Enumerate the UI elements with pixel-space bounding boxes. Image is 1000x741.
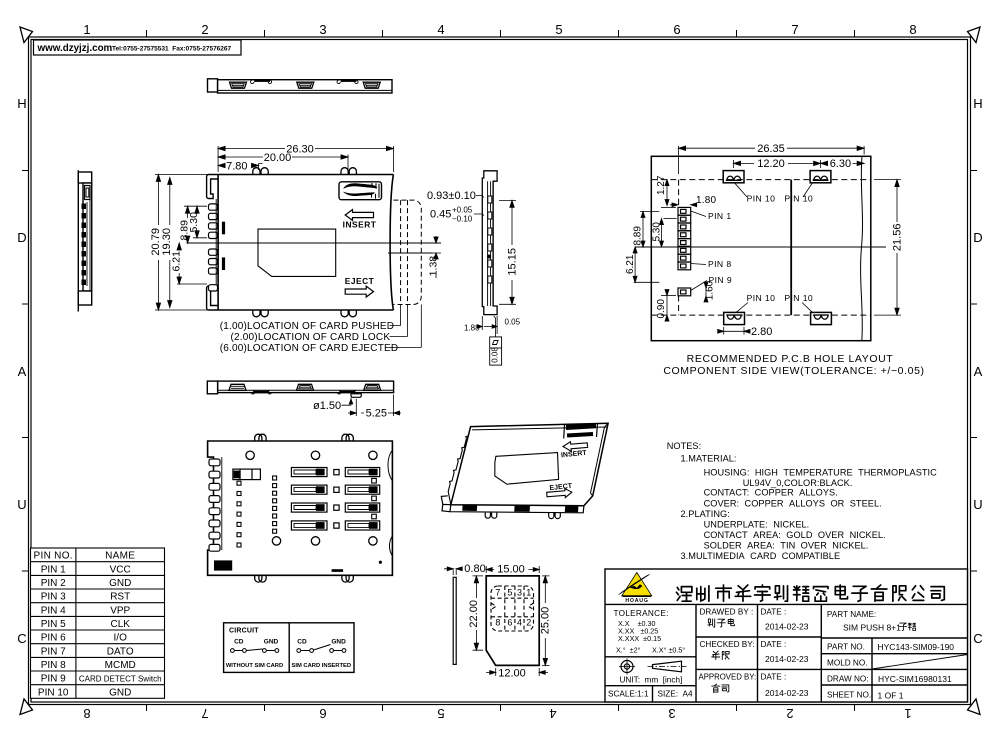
svg-text:RECOMMENDED P.C.B HOLE LAYOUT: RECOMMENDED P.C.B HOLE LAYOUT xyxy=(687,353,894,365)
svg-text:0.45: 0.45 xyxy=(430,209,451,221)
svg-text:A: A xyxy=(18,364,27,379)
svg-text:PIN 5: PIN 5 xyxy=(41,619,66,630)
svg-text:0.90: 0.90 xyxy=(656,299,667,319)
svg-text:PIN 3: PIN 3 xyxy=(41,592,66,603)
svg-text:I/O: I/O xyxy=(114,633,128,644)
svg-text:GND: GND xyxy=(109,687,131,698)
svg-text:8.89: 8.89 xyxy=(633,226,644,246)
svg-text:HOUSING: HIGH TEMPERATURE THER: HOUSING: HIGH TEMPERATURE THERMOPLASTIC xyxy=(704,468,938,478)
svg-text:DRAW NO:: DRAW NO: xyxy=(827,675,869,684)
svg-text:PIN 9: PIN 9 xyxy=(41,674,66,685)
svg-text:8: 8 xyxy=(83,706,90,721)
svg-text:4: 4 xyxy=(437,22,444,37)
svg-text:12.00: 12.00 xyxy=(498,667,526,679)
svg-text:www.dzyjzj.com: www.dzyjzj.com xyxy=(37,43,113,54)
svg-text:15.15: 15.15 xyxy=(506,248,518,276)
svg-text:PIN NO.: PIN NO. xyxy=(34,551,73,562)
svg-text:NAME: NAME xyxy=(105,551,135,562)
svg-text:ø1.50: ø1.50 xyxy=(313,400,341,412)
svg-text:6: 6 xyxy=(673,22,680,37)
svg-text:1.27: 1.27 xyxy=(656,175,667,195)
svg-text:0.08: 0.08 xyxy=(491,347,500,363)
svg-text:CONTACT AREA: GOLD OVER NICKEL: CONTACT AREA: GOLD OVER NICKEL. xyxy=(704,530,886,540)
svg-text:U: U xyxy=(973,497,982,512)
svg-text:+0.05: +0.05 xyxy=(452,206,473,215)
svg-text:5: 5 xyxy=(507,588,512,598)
svg-text:Tel:0755-27575531 Fax:0755-27: Tel:0755-27575531 Fax:0755-27576267 xyxy=(112,45,232,52)
svg-text:6.21: 6.21 xyxy=(170,251,182,272)
svg-text:CHECKED BY:: CHECKED BY: xyxy=(700,640,755,649)
svg-text:UL94V_0,COLOR:BLACK.: UL94V_0,COLOR:BLACK. xyxy=(743,478,853,488)
svg-text:HYC-SIM16980131: HYC-SIM16980131 xyxy=(878,674,952,684)
svg-text:CD: CD xyxy=(234,639,244,646)
svg-text:DATO: DATO xyxy=(107,646,134,657)
svg-text:25.00: 25.00 xyxy=(540,607,552,635)
svg-text:APPROVED BY:: APPROVED BY: xyxy=(699,673,757,682)
svg-text:2.80: 2.80 xyxy=(751,326,772,338)
svg-text:2.PLATING:: 2.PLATING: xyxy=(681,509,730,519)
svg-text:PIN 7: PIN 7 xyxy=(41,646,66,657)
svg-text:PIN 10: PIN 10 xyxy=(747,194,776,204)
svg-text:MCMD: MCMD xyxy=(105,660,136,671)
svg-text:PART NAME:: PART NAME: xyxy=(827,610,876,619)
svg-text:GND: GND xyxy=(331,639,346,646)
svg-text:−0.10: −0.10 xyxy=(452,215,473,224)
svg-text:CIRCUIT: CIRCUIT xyxy=(229,628,259,635)
svg-text:UNIT: mm [inch]: UNIT: mm [inch] xyxy=(620,676,683,685)
svg-text:5: 5 xyxy=(437,706,444,721)
svg-text:DATE :: DATE : xyxy=(761,673,787,682)
svg-text:PIN 10: PIN 10 xyxy=(38,687,69,698)
svg-text:CONTACT: COPPER ALLOYS.: CONTACT: COPPER ALLOYS. xyxy=(704,488,838,498)
svg-text:26.35: 26.35 xyxy=(757,143,785,155)
svg-text:X.° ±2°: X.° ±2° xyxy=(616,646,641,655)
svg-text:PART NO.: PART NO. xyxy=(827,643,865,652)
svg-text:5: 5 xyxy=(555,22,562,37)
svg-text:DATE :: DATE : xyxy=(761,640,787,649)
svg-text:GND: GND xyxy=(109,578,131,589)
svg-text:1.MATERIAL:: 1.MATERIAL: xyxy=(681,454,737,464)
svg-text:RST: RST xyxy=(110,592,130,603)
svg-text:12.20: 12.20 xyxy=(757,158,785,170)
svg-text:SCALE:1:1: SCALE:1:1 xyxy=(608,690,649,699)
svg-text:0.93±0.10: 0.93±0.10 xyxy=(427,190,476,202)
svg-text:1: 1 xyxy=(526,588,531,598)
svg-text:0.80: 0.80 xyxy=(464,563,485,575)
svg-text:3.MULTIMEDIA CARD COMPATIBLE: 3.MULTIMEDIA CARD COMPATIBLE xyxy=(681,551,841,561)
svg-text:PIN 8: PIN 8 xyxy=(708,259,732,269)
svg-text:4: 4 xyxy=(549,706,556,721)
svg-text:EJECT: EJECT xyxy=(345,276,375,286)
svg-text:(1.00)LOCATION OF CARD PUSHED: (1.00)LOCATION OF CARD PUSHED xyxy=(220,321,395,332)
svg-text:HOAUG: HOAUG xyxy=(625,598,648,604)
svg-text:15.00: 15.00 xyxy=(497,564,525,576)
svg-text:VPP: VPP xyxy=(110,605,130,616)
svg-text:2014-02-23: 2014-02-23 xyxy=(765,654,809,664)
svg-text:21.56: 21.56 xyxy=(892,224,904,252)
svg-text:X.XXX ±0.15: X.XXX ±0.15 xyxy=(618,634,661,643)
svg-text:SOLDER AREA: TIN OVER NICKEL.: SOLDER AREA: TIN OVER NICKEL. xyxy=(704,541,869,551)
svg-text:CLK: CLK xyxy=(110,619,130,630)
svg-text:2014-02-23: 2014-02-23 xyxy=(765,688,809,698)
svg-text:U: U xyxy=(17,497,26,512)
svg-text:X.X° ±0.5°: X.X° ±0.5° xyxy=(652,646,685,655)
svg-text:6.21: 6.21 xyxy=(625,254,636,274)
svg-text:20.79: 20.79 xyxy=(150,228,162,256)
svg-text:1: 1 xyxy=(904,706,911,721)
svg-text:1 OF 1: 1 OF 1 xyxy=(878,691,904,701)
svg-text:CARD DETECT Switch: CARD DETECT Switch xyxy=(79,675,162,684)
svg-text:2: 2 xyxy=(526,618,531,628)
svg-text:20.00: 20.00 xyxy=(264,152,292,164)
svg-text:7: 7 xyxy=(201,706,208,721)
svg-text:7: 7 xyxy=(791,22,798,37)
svg-text:PIN 1: PIN 1 xyxy=(708,211,732,221)
svg-text:D: D xyxy=(17,230,26,245)
svg-text:MOLD NO.: MOLD NO. xyxy=(827,659,868,668)
svg-text:SIM CARD INSERTED: SIM CARD INSERTED xyxy=(292,663,352,669)
svg-text:PIN 10: PIN 10 xyxy=(784,194,813,204)
svg-text:PIN 4: PIN 4 xyxy=(41,605,66,616)
svg-text:SHEET NO.: SHEET NO. xyxy=(827,691,871,700)
svg-text:COVER: COPPER ALLOYS OR STEEL.: COVER: COPPER ALLOYS OR STEEL. xyxy=(704,499,882,509)
svg-text:TOLERANCE:: TOLERANCE: xyxy=(614,609,669,618)
svg-text:3: 3 xyxy=(668,706,675,721)
svg-text:H: H xyxy=(973,96,982,111)
svg-text:6: 6 xyxy=(507,618,512,628)
svg-text:5.30: 5.30 xyxy=(651,222,662,242)
svg-text:C: C xyxy=(17,631,26,646)
svg-text:GND: GND xyxy=(264,639,279,646)
svg-text:PIN 2: PIN 2 xyxy=(41,578,66,589)
svg-text:2014-02-23: 2014-02-23 xyxy=(765,622,809,632)
svg-text:COMPONENT SIDE VIEW(TOLERANCE:: COMPONENT SIDE VIEW(TOLERANCE: +/−0.05) xyxy=(663,365,924,377)
svg-text:8: 8 xyxy=(909,22,916,37)
svg-text:1: 1 xyxy=(83,22,90,37)
svg-text:7.80: 7.80 xyxy=(226,160,247,172)
svg-text:NOTES:: NOTES: xyxy=(667,441,702,451)
svg-text:INSERT: INSERT xyxy=(343,219,377,229)
svg-text:2: 2 xyxy=(201,22,208,37)
svg-text:DRAWED BY :: DRAWED BY : xyxy=(700,608,754,617)
svg-text:D: D xyxy=(973,230,982,245)
svg-text:SIM PUSH 8+1: SIM PUSH 8+1 xyxy=(843,623,901,633)
svg-text:3: 3 xyxy=(517,588,522,598)
svg-text:PIN 1: PIN 1 xyxy=(41,564,66,575)
svg-text:PIN 6: PIN 6 xyxy=(41,633,66,644)
svg-text:8: 8 xyxy=(495,618,500,628)
svg-text:22.00: 22.00 xyxy=(468,600,480,628)
svg-text:A: A xyxy=(974,364,983,379)
svg-text:DATE :: DATE : xyxy=(761,608,787,617)
svg-text:(6.00)LOCATION OF CARD EJECTED: (6.00)LOCATION OF CARD EJECTED xyxy=(220,343,399,354)
svg-text:CD: CD xyxy=(297,639,307,646)
svg-text:(2.00)LOCATION OF CARD LOCK: (2.00)LOCATION OF CARD LOCK xyxy=(231,332,391,343)
svg-text:3: 3 xyxy=(319,22,326,37)
svg-text:HYC143-SIM09-190: HYC143-SIM09-190 xyxy=(878,642,955,652)
svg-text:SIZE: A4: SIZE: A4 xyxy=(658,690,693,699)
svg-text:6: 6 xyxy=(319,706,326,721)
svg-text:7: 7 xyxy=(495,588,500,598)
svg-text:1.80: 1.80 xyxy=(696,195,717,206)
svg-text:4: 4 xyxy=(517,618,522,628)
svg-text:5.25: 5.25 xyxy=(366,408,387,420)
svg-text:PIN 8: PIN 8 xyxy=(41,660,66,671)
svg-text:0.05: 0.05 xyxy=(505,318,521,327)
svg-text:5.30: 5.30 xyxy=(188,212,200,233)
svg-text:C: C xyxy=(973,631,982,646)
svg-text:UNDERPLATE: NICKEL.: UNDERPLATE: NICKEL. xyxy=(704,520,810,530)
svg-text:VCC: VCC xyxy=(110,564,131,575)
svg-text:WITHOUT SIM CARD: WITHOUT SIM CARD xyxy=(226,663,283,669)
svg-text:PIN 10: PIN 10 xyxy=(784,293,813,303)
svg-text:H: H xyxy=(17,96,26,111)
svg-text:1.38: 1.38 xyxy=(428,256,440,277)
svg-text:PIN 10: PIN 10 xyxy=(747,293,776,303)
svg-text:6.30: 6.30 xyxy=(830,158,851,170)
svg-text:1.60: 1.60 xyxy=(705,280,716,300)
svg-text:2: 2 xyxy=(786,706,793,721)
